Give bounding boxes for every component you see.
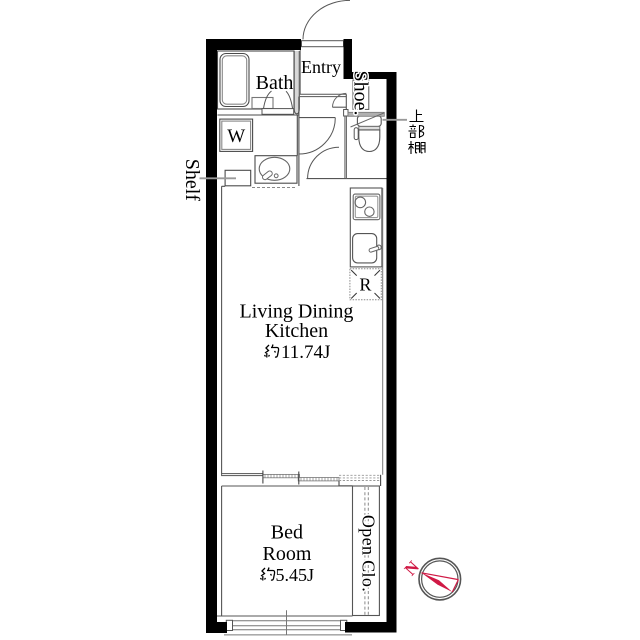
svg-text:Open Clo.: Open Clo. <box>359 515 379 592</box>
svg-text:Entry: Entry <box>301 57 341 77</box>
svg-text:Shelf: Shelf <box>181 159 203 202</box>
svg-text:Bath: Bath <box>256 72 294 94</box>
svg-text:Kitchen: Kitchen <box>265 320 328 342</box>
svg-text:W: W <box>227 126 245 147</box>
svg-text:11.74J: 11.74J <box>281 342 330 363</box>
svg-text:Bed: Bed <box>271 522 303 544</box>
svg-text:5.45J: 5.45J <box>276 565 315 585</box>
svg-text:Shoe.: Shoe. <box>349 71 371 116</box>
svg-text:R: R <box>359 275 371 295</box>
svg-text:Room: Room <box>263 543 312 565</box>
